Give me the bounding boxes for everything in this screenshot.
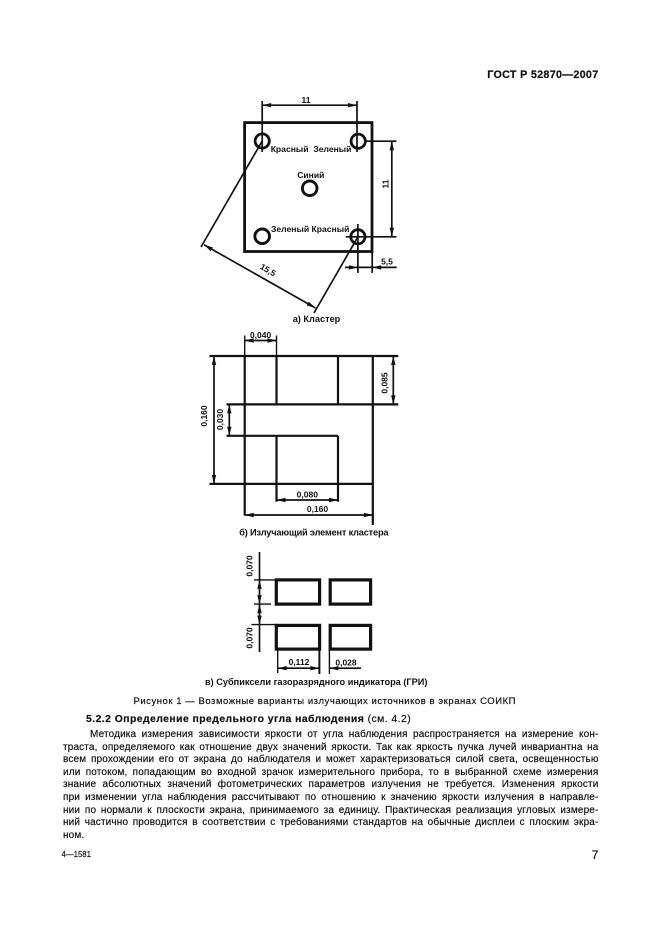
svg-text:5,5: 5,5 xyxy=(381,257,393,267)
svg-text:15,5: 15,5 xyxy=(258,261,278,278)
svg-text:б) Излучающий элемент кластера: б) Излучающий элемент кластера xyxy=(239,527,389,537)
svg-text:Красный Зеленый: Красный Зеленый xyxy=(271,144,352,154)
svg-text:0,030: 0,030 xyxy=(215,409,225,431)
svg-text:в) Субпиксели газоразрядного и: в) Субпиксели газоразрядного индикатора … xyxy=(205,677,427,687)
svg-text:0,112: 0,112 xyxy=(289,657,310,667)
svg-text:0,160: 0,160 xyxy=(307,504,329,514)
svg-text:0,040: 0,040 xyxy=(250,330,272,340)
svg-text:Синий: Синий xyxy=(297,170,324,180)
svg-text:а) Кластер: а) Кластер xyxy=(293,314,341,324)
svg-text:0,085: 0,085 xyxy=(380,372,390,394)
svg-text:0,028: 0,028 xyxy=(335,658,357,668)
svg-text:0,070: 0,070 xyxy=(245,627,255,649)
svg-text:11: 11 xyxy=(302,95,311,105)
svg-text:0,080: 0,080 xyxy=(297,490,319,500)
svg-text:Зеленый Красный: Зеленый Красный xyxy=(271,224,349,234)
svg-text:0,070: 0,070 xyxy=(245,555,255,577)
svg-text:0,160: 0,160 xyxy=(199,405,209,427)
svg-text:11: 11 xyxy=(381,179,391,188)
